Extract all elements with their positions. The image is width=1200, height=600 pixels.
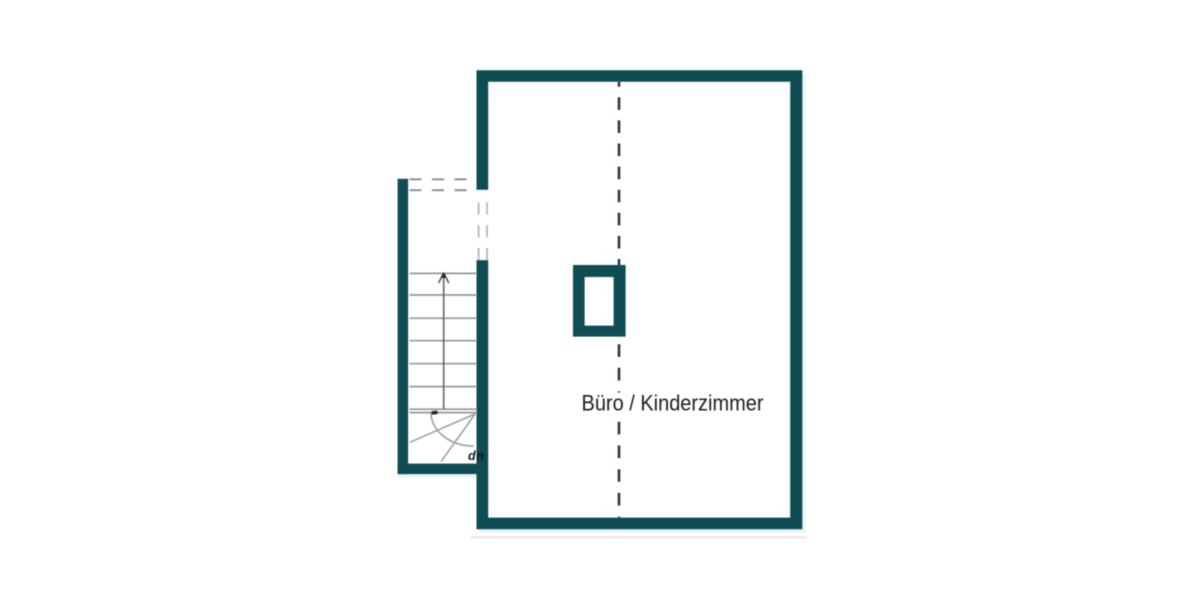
svg-text:Büro / Kinderzimmer: Büro / Kinderzimmer [582, 391, 764, 416]
svg-text:dn: dn [468, 449, 485, 463]
